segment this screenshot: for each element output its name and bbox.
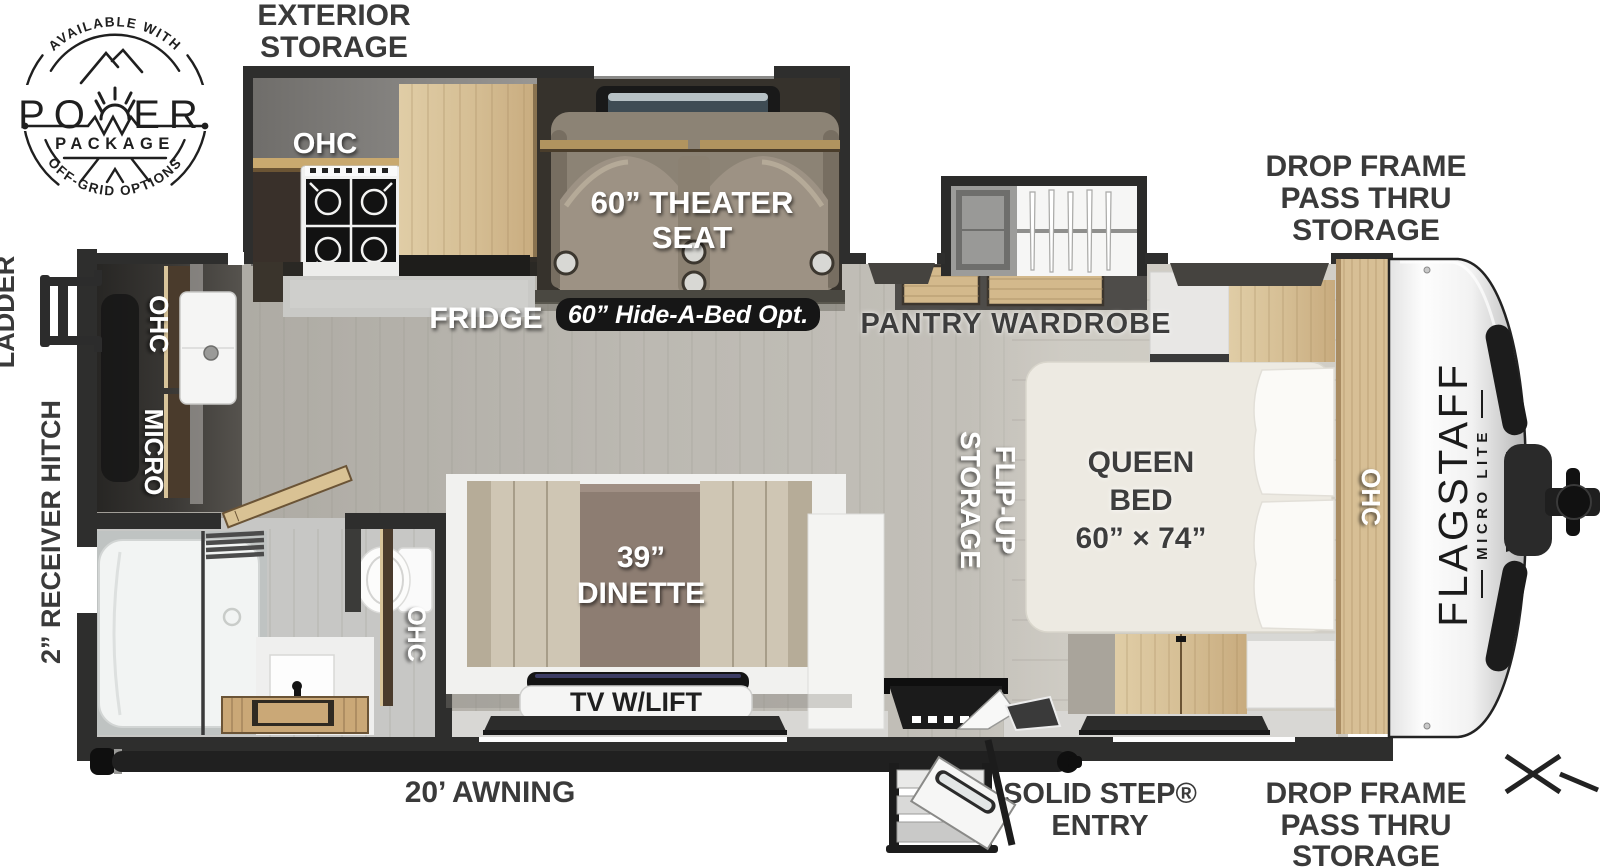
svg-text:OHC: OHC xyxy=(293,128,358,160)
svg-text:2” RECEIVER HITCH: 2” RECEIVER HITCH xyxy=(36,400,66,664)
svg-text:PANTRY WARDROBE: PANTRY WARDROBE xyxy=(861,308,1172,340)
svg-text:STORAGE: STORAGE xyxy=(1292,840,1440,868)
svg-text:BED: BED xyxy=(1109,484,1172,517)
svg-text:DROP FRAME: DROP FRAME xyxy=(1265,777,1466,810)
svg-text:EXTERIOR: EXTERIOR xyxy=(257,0,411,32)
svg-text:FLIP-UP: FLIP-UP xyxy=(990,446,1021,555)
svg-text:60” × 74”: 60” × 74” xyxy=(1076,522,1207,555)
svg-text:MICRO: MICRO xyxy=(139,409,169,496)
svg-text:PASS THRU: PASS THRU xyxy=(1280,182,1451,215)
svg-text:DINETTE: DINETTE xyxy=(577,577,705,610)
svg-text:PO: PO xyxy=(18,93,94,137)
svg-text:ER: ER xyxy=(133,93,207,137)
svg-text:STORAGE: STORAGE xyxy=(260,31,408,64)
svg-text:FRIDGE: FRIDGE xyxy=(429,302,542,335)
svg-text:LADDER: LADDER xyxy=(0,256,20,369)
svg-text:TV W/LIFT: TV W/LIFT xyxy=(570,687,702,717)
svg-text:STORAGE: STORAGE xyxy=(1292,214,1440,247)
svg-text:PASS THRU: PASS THRU xyxy=(1280,809,1451,842)
svg-text:20’ AWNING: 20’ AWNING xyxy=(405,776,576,809)
svg-text:60” Hide-A-Bed Opt.: 60” Hide-A-Bed Opt. xyxy=(568,301,808,329)
svg-text:ENTRY: ENTRY xyxy=(1051,810,1148,842)
svg-text:60” THEATER: 60” THEATER xyxy=(591,185,794,220)
svg-text:SEAT: SEAT xyxy=(652,220,732,255)
svg-text:OHC: OHC xyxy=(1356,468,1386,526)
svg-text:SOLID STEP®: SOLID STEP® xyxy=(1003,778,1197,810)
svg-text:OHC: OHC xyxy=(402,606,430,662)
svg-text:DROP FRAME: DROP FRAME xyxy=(1265,150,1466,183)
svg-text:MICRO LITE: MICRO LITE xyxy=(1474,428,1491,560)
svg-text:OHC: OHC xyxy=(144,295,174,353)
svg-text:QUEEN: QUEEN xyxy=(1088,446,1195,479)
svg-text:FLAGSTAFF: FLAGSTAFF xyxy=(1430,361,1476,626)
svg-text:PACKAGE: PACKAGE xyxy=(55,135,175,153)
svg-text:STORAGE: STORAGE xyxy=(955,431,986,569)
svg-text:39”: 39” xyxy=(617,541,665,574)
